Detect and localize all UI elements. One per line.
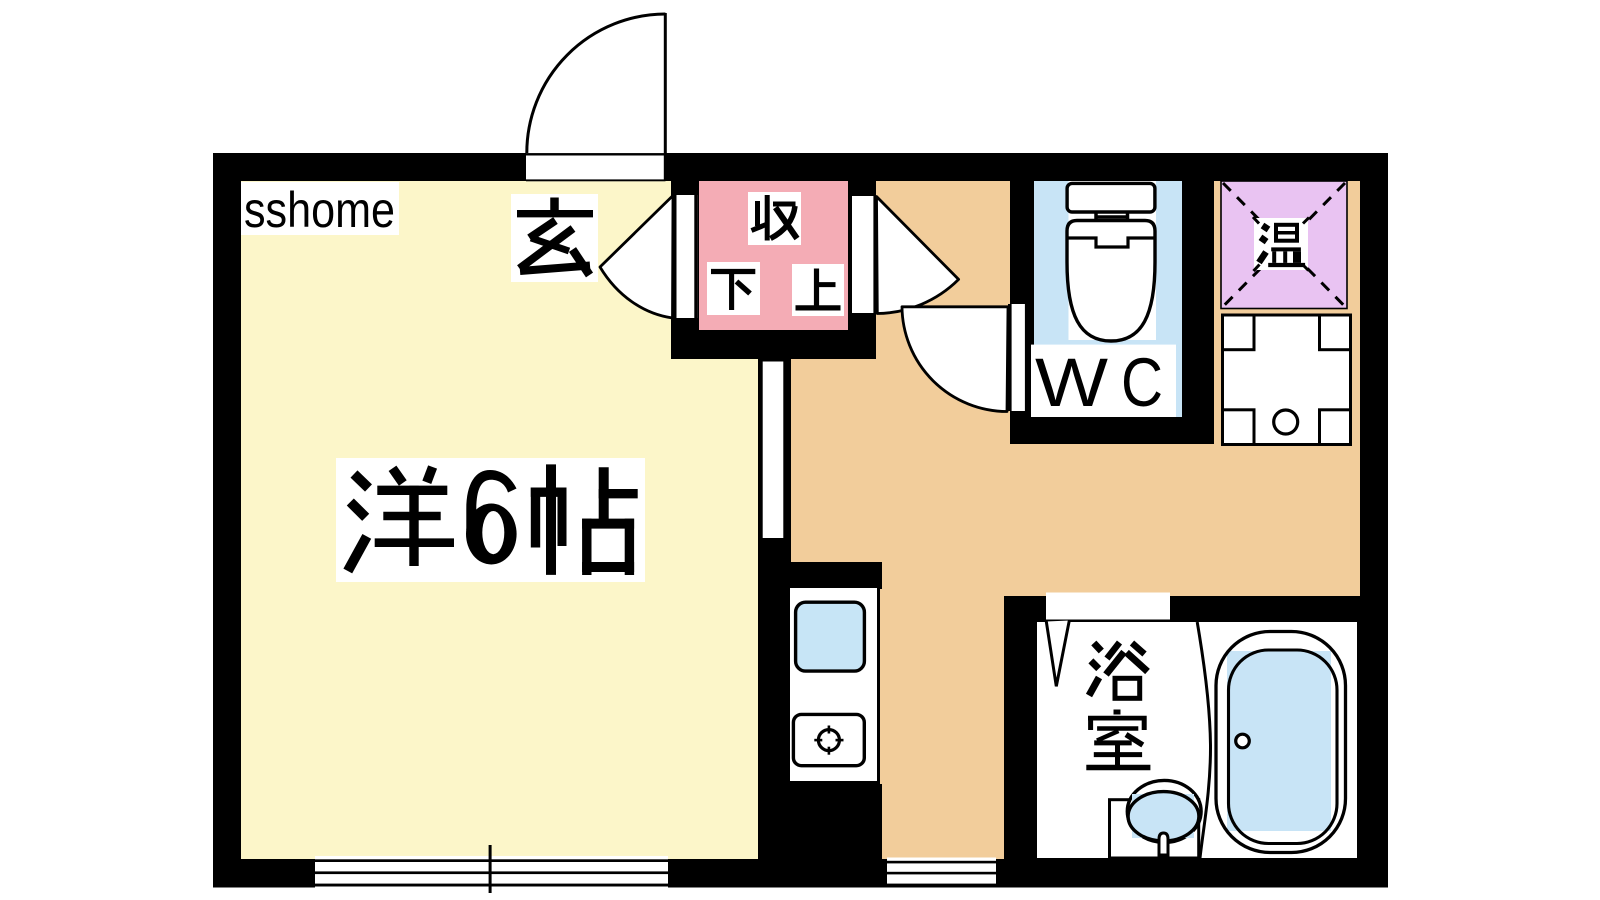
svg-text:C: C	[1121, 344, 1163, 421]
svg-text:W: W	[1035, 344, 1108, 421]
svg-text:sshome: sshome	[244, 182, 395, 238]
